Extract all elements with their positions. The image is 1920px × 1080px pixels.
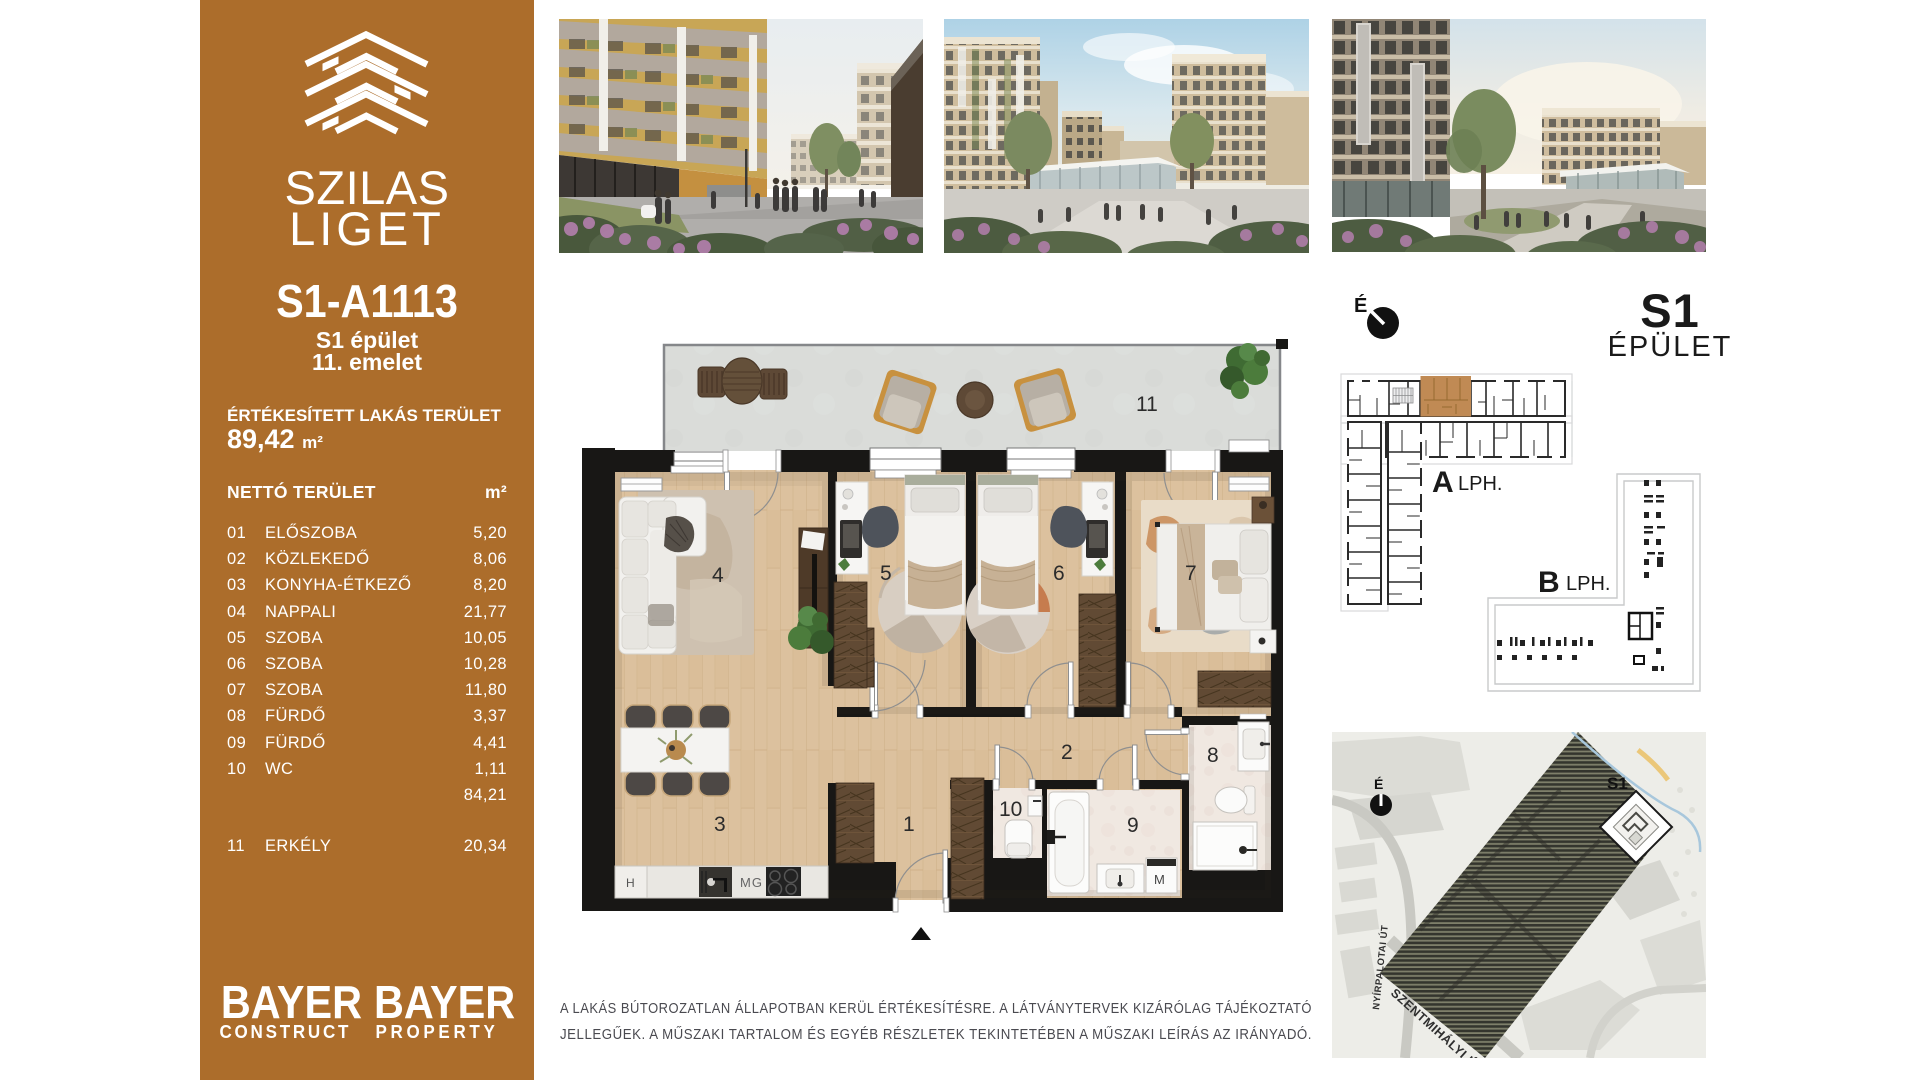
svg-text:8: 8 [1207,744,1219,767]
svg-text:6: 6 [1053,562,1065,585]
svg-text:A: A [1432,466,1454,499]
svg-text:B: B [1538,566,1560,599]
svg-text:10: 10 [999,798,1022,821]
svg-text:M: M [1154,872,1165,887]
svg-text:7: 7 [1185,562,1197,585]
svg-text:S1: S1 [1640,284,1700,337]
svg-text:ÉPÜLET: ÉPÜLET [1608,330,1730,363]
svg-text:É: É [1374,776,1383,792]
svg-text:LPH.: LPH. [1458,473,1502,495]
svg-text:3: 3 [714,813,726,836]
svg-text:1: 1 [903,813,915,836]
svg-text:11: 11 [1136,393,1158,416]
svg-text:H: H [626,876,635,890]
svg-text:LPH.: LPH. [1566,573,1610,595]
svg-text:É: É [1354,294,1367,317]
svg-text:5: 5 [880,562,892,585]
svg-text:S1: S1 [1607,774,1628,793]
svg-text:MG: MG [740,875,763,890]
svg-text:9: 9 [1127,814,1139,837]
svg-text:2: 2 [1061,741,1073,764]
svg-text:4: 4 [712,564,724,587]
